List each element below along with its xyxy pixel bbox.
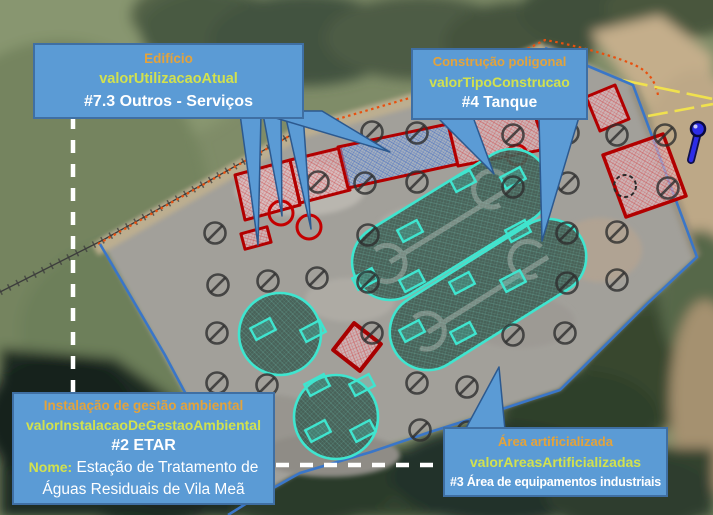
callout-value: #3 Área de equipamentos industriais [445,473,666,491]
callout-name-line: Nome: Estação de Tratamento de Águas Res… [14,457,273,500]
callout-attribute: valorTipoConstrucao [413,72,586,92]
callout-instalacao-gestao-ambiental: Instalação de gestão ambiental valorInst… [12,392,275,505]
callout-attribute: valorUtilizacaoAtual [35,69,302,90]
callout-edificio: Edifício valorUtilizacaoAtual #7.3 Outro… [33,43,304,119]
name-label: Nome: [29,459,73,475]
callout-attribute: valorInstalacaoDeGestaoAmbiental [14,416,273,435]
annotated-satellite-map: Edifício valorUtilizacaoAtual #7.3 Outro… [0,0,713,515]
callout-attribute: valorAreasArtificializadas [445,452,666,472]
name-value: Estação de Tratamento de Águas Residuais… [42,459,258,497]
callout-title: Área artificializada [445,433,666,452]
callout-value: #2 ETAR [14,435,273,457]
callout-title: Edifício [35,49,302,69]
callout-title: Instalação de gestão ambiental [14,397,273,416]
callout-area-artificializada: Área artificializada valorAreasArtificia… [443,427,668,497]
callout-title: Construção poligonal [413,53,586,72]
callout-construcao-poligonal: Construção poligonal valorTipoConstrucao… [411,48,588,120]
callout-value: #7.3 Outros - Serviços [35,90,302,113]
callout-value: #4 Tanque [413,92,586,114]
